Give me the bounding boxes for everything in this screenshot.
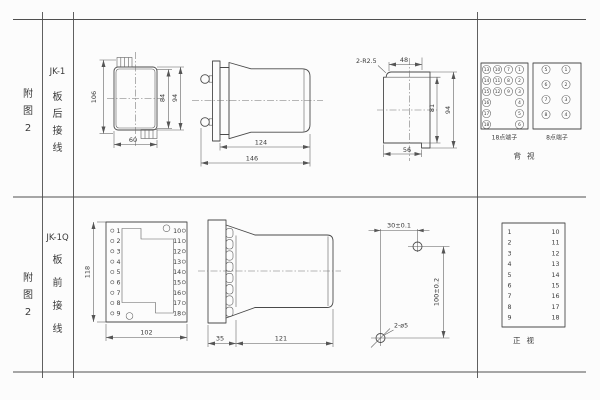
terminal-bumps-bottom [141,130,157,139]
terminal-number: 9 [117,311,121,318]
wiring-char: 板 [53,90,63,103]
terminal-number: 15 [484,89,490,95]
fig-char: 图 [23,105,33,117]
terminal-number: 4 [117,259,121,266]
terminal-number: 18 [551,315,559,322]
terminal-number: 7 [508,293,512,300]
block18-label: 18点端子 [492,134,518,142]
dim-94: 94 [171,94,179,102]
terminal-number: 12 [495,89,501,95]
terminal-number: 18 [484,122,490,128]
wiring-char: 线 [53,141,63,154]
terminal-number: 12 [551,250,559,257]
terminal-number: 8 [508,304,512,311]
wiring-char: 接 [53,124,63,137]
dim-81: 81 [428,104,436,112]
terminal-number: 8 [117,300,121,307]
fig-char: 2 [25,307,31,318]
dim-102: 102 [140,329,152,337]
terminal-number: 11 [173,238,181,245]
table-grid [13,12,586,378]
terminal-number: 12 [173,249,181,256]
terminal-bumps [226,228,233,316]
header-row1: 附 图 2 JK-1 板 后 接 线 [23,67,65,154]
fig-char: 图 [23,289,33,301]
wiring-char: 前 [53,276,63,289]
list-left-column: 1 2 3 4 5 6 7 8 9 [508,229,512,322]
terminal-number: 1 [565,67,568,73]
terminal-number: 9 [508,315,512,322]
terminal-number: 13 [551,261,559,268]
dim-94: 94 [444,106,452,114]
hole-note: 2-ø5 [394,323,408,330]
block8-label: 8点端子 [546,134,568,142]
jk1-side-view: 124 146 [192,61,323,167]
terminal-number: 3 [518,89,521,95]
mounting-hole [163,225,170,232]
terminal-number: 10 [495,67,501,73]
terminal-number: 5 [508,272,512,279]
wiring-char: 接 [53,299,63,312]
terminal-number: 14 [484,78,490,84]
mounting-screw [201,118,213,127]
list-right-column: 10 11 12 13 14 15 16 17 18 [551,229,559,322]
terminal-number: 2 [518,78,521,84]
mounting-hole [126,313,133,320]
terminal-number: 7 [117,290,121,297]
terminal-number: 5 [545,67,548,73]
terminal-number: 10 [551,229,559,236]
terminal-number: 7 [507,67,510,73]
terminal-number: 16 [484,100,490,106]
terminal-number: 4 [565,112,568,118]
terminal-number: 6 [545,82,548,88]
terminal-list: 1 2 3 4 5 6 7 8 9 10 11 12 13 14 15 16 1… [502,223,565,345]
terminal-number: 13 [484,67,490,73]
terminal-number: 9 [507,89,510,95]
fig-char: 附 [23,87,33,100]
terminal-number: 6 [518,122,521,128]
terminal-bumps-top [117,58,132,68]
dim-60: 60 [129,136,137,144]
terminal-number: 6 [508,283,512,290]
header-row2: 附 图 2 JK-1Q 板 前 接 线 [23,233,69,335]
dim-56: 56 [403,146,411,154]
terminal-number: 5 [117,269,121,276]
terminal-number: 6 [117,280,121,287]
terminal-number: 13 [173,259,181,266]
terminal-number: 18 [173,311,181,318]
terminal-number: 14 [173,269,181,276]
dim-121: 121 [275,335,287,343]
dim-118: 118 [84,266,92,278]
terminal-number: 17 [551,304,559,311]
jk1q-side-view: 35 121 [198,220,341,347]
terminal-number: 2 [117,238,121,245]
terminal-number: 17 [173,300,181,307]
model-label: JK-1 [49,67,66,77]
terminal-number: 8 [507,78,510,84]
jk1-rear-view: 2-R2.5 48 81 94 56 [356,56,457,161]
dim-106: 106 [90,91,98,103]
jk1-front-view: 106 84 94 60 [90,52,184,148]
rear-view-label: 背视 [514,151,541,161]
terminal-number: 8 [545,112,548,118]
dim-124: 124 [255,139,267,147]
drill-template: 30±0.1 100±0.2 2-ø5 [369,222,450,348]
wiring-char: 板 [53,253,63,266]
terminal-number: 14 [551,272,559,279]
terminal-number: 4 [518,100,521,106]
dim-100: 100±0.2 [433,278,441,306]
terminal-number: 7 [545,97,548,103]
dim-35: 35 [216,335,224,343]
technical-drawing-svg: 附 图 2 JK-1 板 后 接 线 附 图 2 JK-1Q 板 前 接 线 [0,0,600,400]
dim-48: 48 [400,56,408,64]
mounting-screw [201,75,213,84]
terminal-number: 17 [484,111,490,117]
jk1q-front-view: 1 2 3 4 5 6 7 8 9 10 11 12 13 14 15 16 1… [84,222,188,341]
terminal-block-8: 5 1 6 2 7 3 8 4 8点端子 [533,63,581,142]
terminal-number: 1 [117,228,121,235]
terminal-number: 5 [518,111,521,117]
terminal-number: 4 [508,261,512,268]
model-label: JK-1Q [45,233,69,243]
wiring-char: 线 [53,322,63,335]
terminal-block-18: 13 10 7 1 14 11 8 2 15 12 9 3 16 4 17 5 … [481,63,528,142]
terminal-number: 15 [173,280,181,287]
terminal-number: 16 [173,290,181,297]
drawing-sheet: 附 图 2 JK-1 板 后 接 线 附 图 2 JK-1Q 板 前 接 线 [0,0,600,400]
terminal-number: 11 [495,78,501,84]
front-view-label: 正视 [513,335,540,345]
terminal-number: 16 [551,293,559,300]
terminal-number: 15 [551,283,559,290]
dim-30: 30±0.1 [387,222,411,230]
terminal-number: 2 [565,82,568,88]
terminal-number: 1 [508,229,512,236]
dim-84: 84 [159,94,167,102]
left-terminals: 1 2 3 4 5 6 7 8 9 [111,228,121,318]
terminal-number: 11 [551,240,559,247]
right-terminals: 10 11 12 13 14 15 16 17 18 [173,228,185,318]
wiring-char: 后 [53,108,63,120]
terminal-number: 1 [518,67,521,73]
fig-char: 2 [25,123,31,134]
dim-146: 146 [246,155,258,163]
fig-char: 附 [23,271,33,284]
terminal-number: 10 [173,228,181,235]
terminal-number: 2 [508,240,512,247]
terminal-number: 3 [565,97,568,103]
terminal-number: 3 [117,249,121,256]
terminal-number: 3 [508,250,512,257]
radius-note: 2-R2.5 [356,58,377,65]
